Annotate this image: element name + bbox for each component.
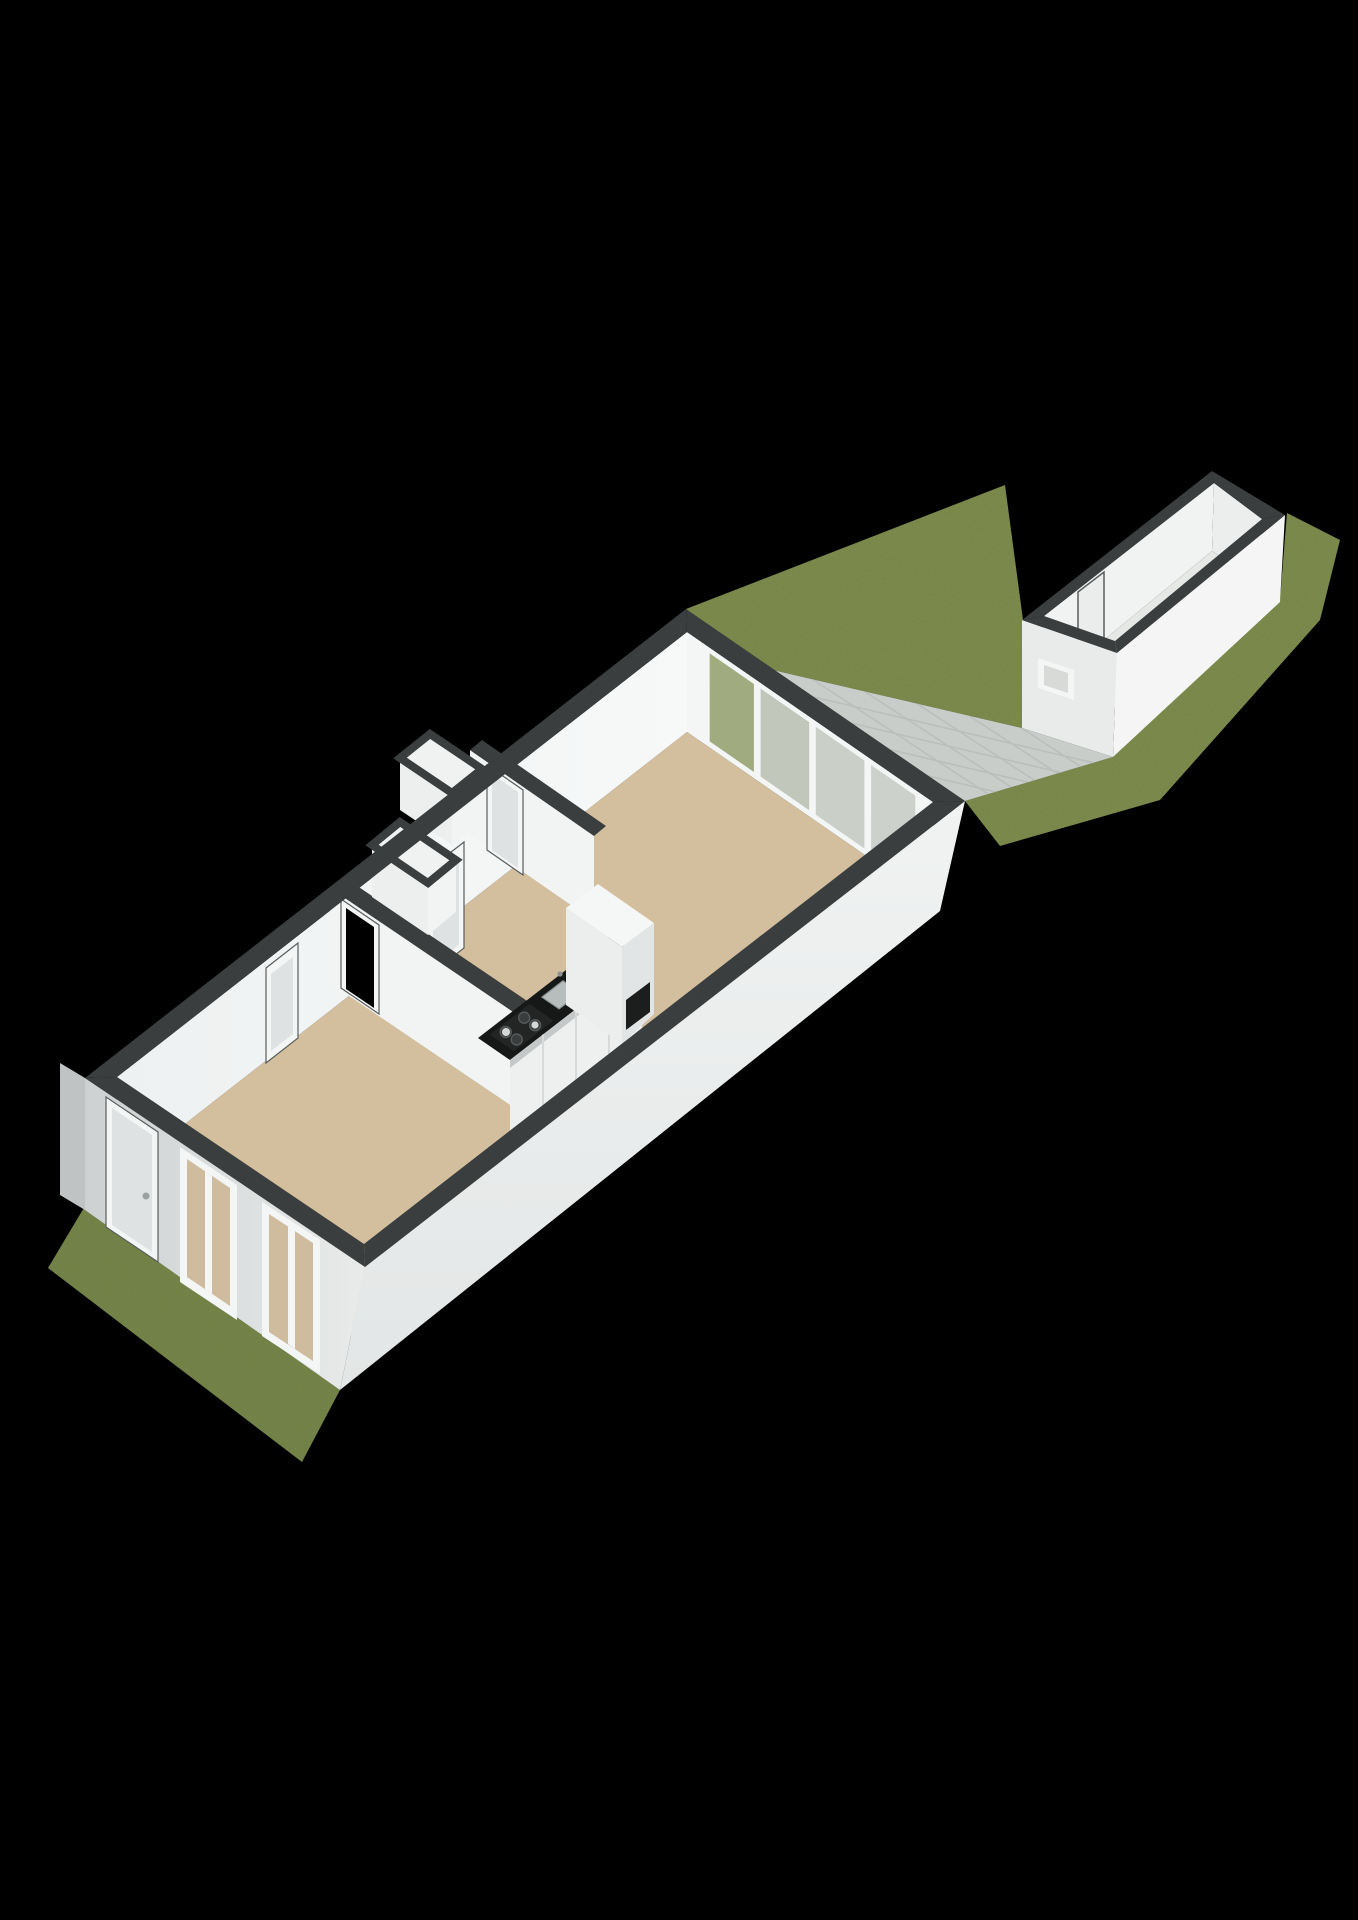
window-mullion [288, 1226, 295, 1349]
floorplan-render-stage [0, 0, 1358, 1920]
facade-nw-sliver [60, 1063, 85, 1210]
window-mullion [205, 1171, 212, 1294]
floorplan-3d-render [0, 0, 1358, 1920]
faucet [557, 971, 562, 976]
pan-on-hob [502, 1028, 510, 1036]
door-handle [143, 1193, 150, 1200]
pot-on-hob [531, 1021, 538, 1028]
